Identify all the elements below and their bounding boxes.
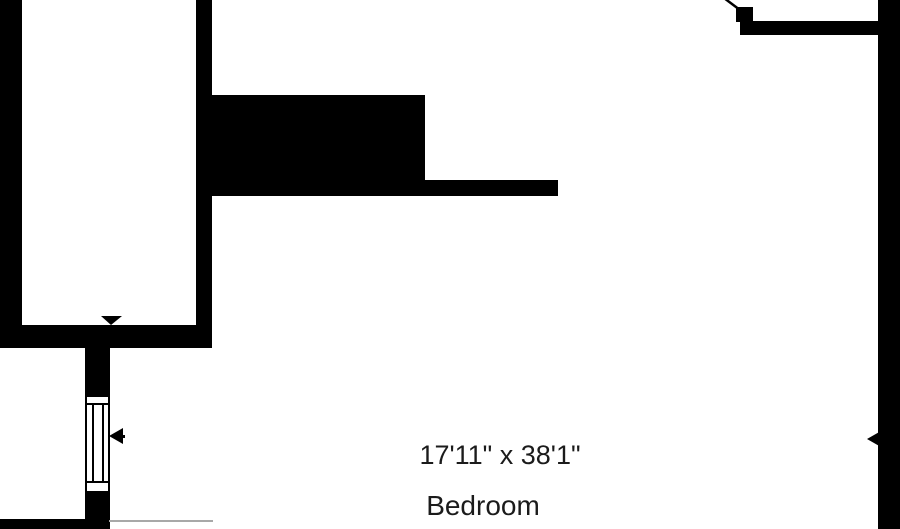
left-arrow-window-stem [119, 435, 125, 438]
down-arrow-icon [101, 316, 122, 325]
room-name-label: Bedroom [333, 490, 633, 522]
floor-plan: 17'11" x 38'1" Bedroom [0, 0, 900, 529]
left-arrow-rightwall-stem [877, 438, 885, 441]
room-dimensions-label: 17'11" x 38'1" [350, 440, 650, 471]
door-swing-line-icon [724, 0, 740, 10]
break-line [109, 520, 213, 522]
